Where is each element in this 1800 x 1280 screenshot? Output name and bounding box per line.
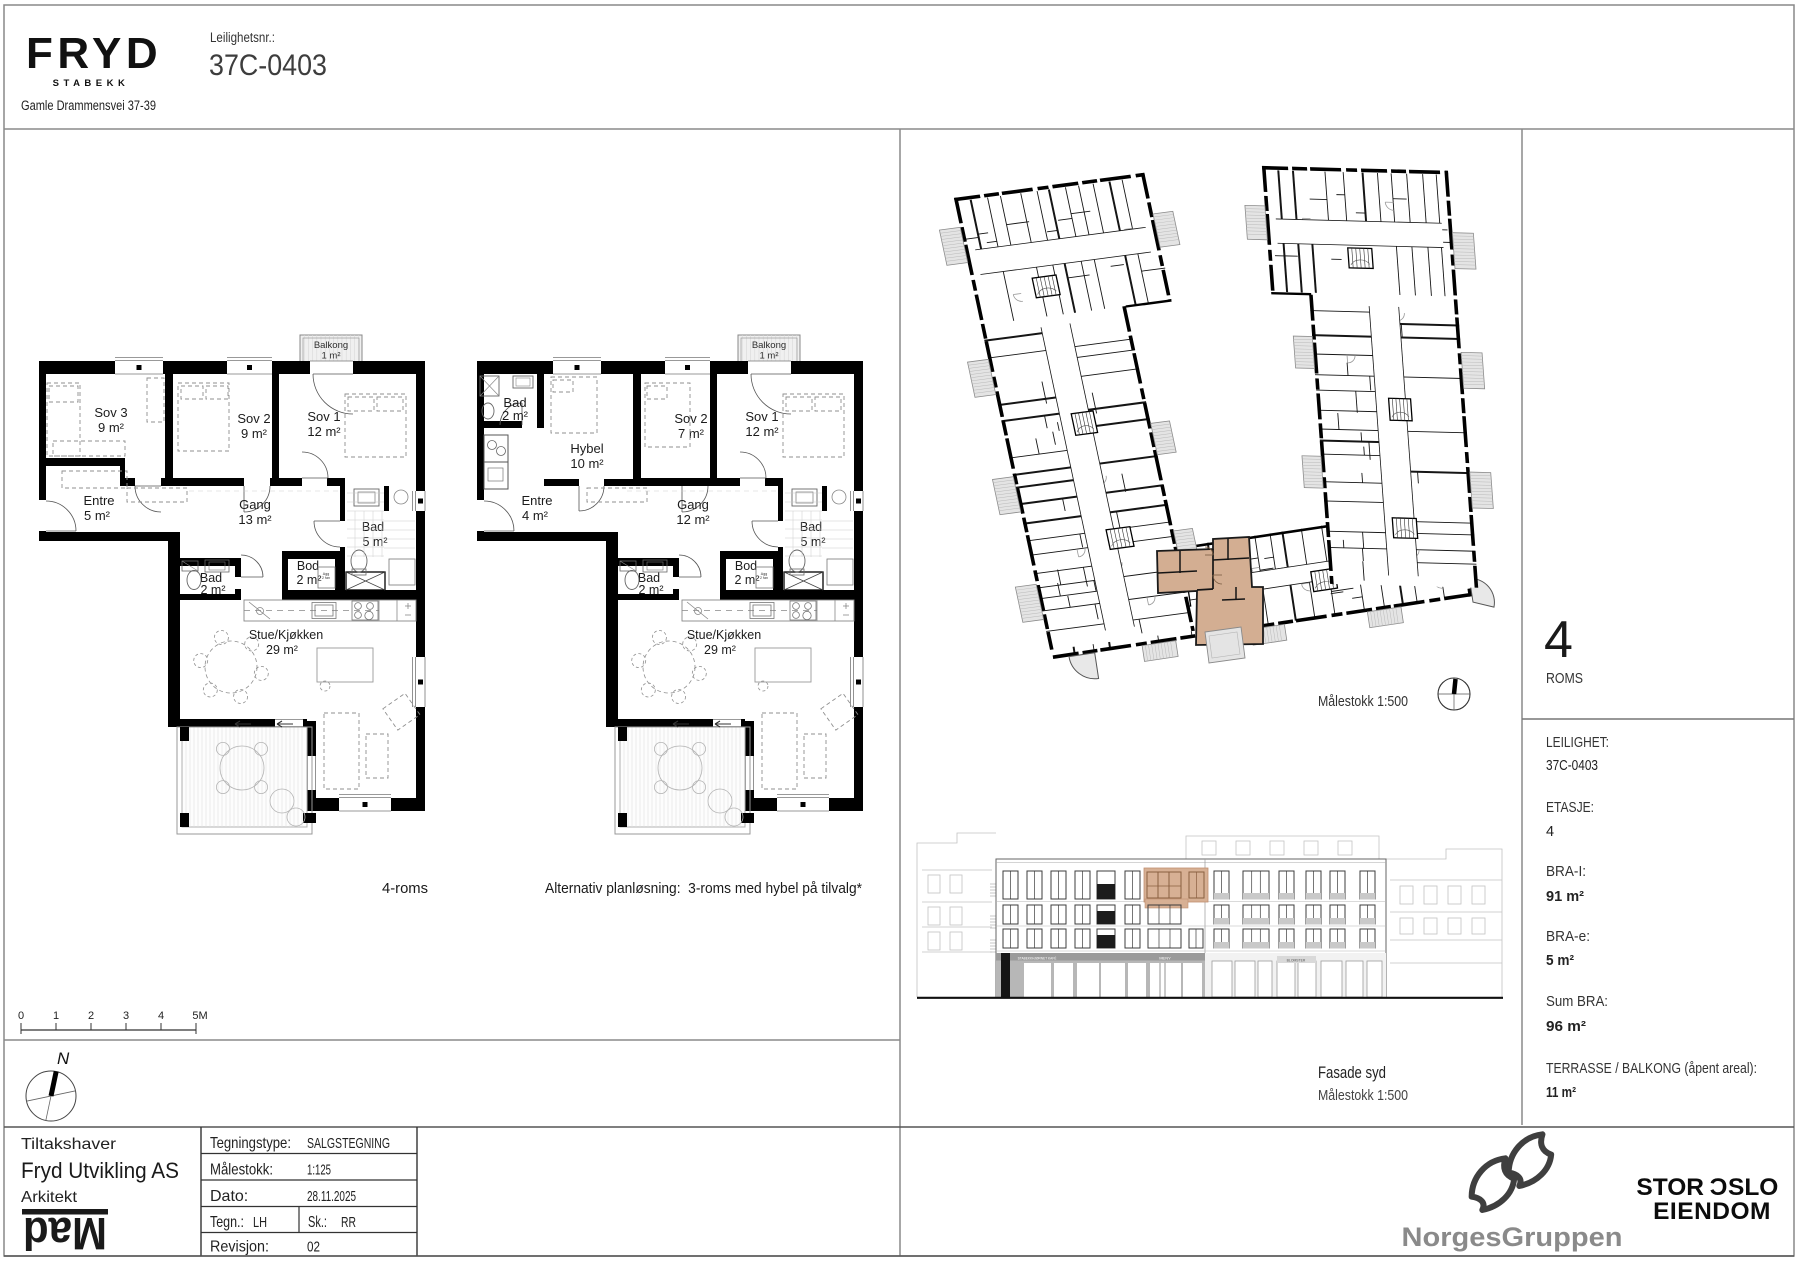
- svg-text:Hybel: Hybel: [570, 441, 603, 456]
- svg-text:BRA-I:: BRA-I:: [1546, 864, 1586, 880]
- svg-text:BRA-e:: BRA-e:: [1546, 929, 1590, 945]
- svg-text:N: N: [57, 1049, 70, 1068]
- svg-text:11 m²: 11 m²: [1546, 1085, 1576, 1101]
- svg-text:Tegningstype:: Tegningstype:: [210, 1135, 291, 1152]
- svg-text:12 m²: 12 m²: [307, 424, 341, 439]
- svg-text:4: 4: [1544, 611, 1573, 669]
- svg-text:ETASJE:: ETASJE:: [1546, 800, 1594, 816]
- svg-text:5 m²: 5 m²: [84, 508, 111, 523]
- svg-text:0: 0: [18, 1010, 24, 1022]
- svg-text:2 m²: 2 m²: [502, 408, 529, 423]
- svg-text:Dato:: Dato:: [210, 1188, 248, 1205]
- svg-text:96 m²: 96 m²: [1546, 1019, 1586, 1035]
- svg-text:Arkitekt: Arkitekt: [21, 1189, 78, 1206]
- svg-text:Sov 2: Sov 2: [674, 411, 707, 426]
- svg-text:LH: LH: [253, 1215, 267, 1231]
- svg-text:Sov 3: Sov 3: [94, 405, 127, 420]
- svg-text:2 m²: 2 m²: [201, 583, 226, 597]
- svg-text:MENY: MENY: [1159, 956, 1171, 961]
- svg-text:Sum BRA:: Sum BRA:: [1546, 994, 1608, 1010]
- svg-text:Tiltakshaver: Tiltakshaver: [21, 1136, 117, 1153]
- svg-text:4-roms: 4-roms: [382, 880, 428, 897]
- svg-text:SLO: SLO: [1728, 1174, 1778, 1201]
- svg-text:Målestokk:: Målestokk:: [210, 1161, 273, 1179]
- svg-text:5M: 5M: [192, 1010, 207, 1022]
- svg-text:Målestokk 1:500: Målestokk 1:500: [1318, 1087, 1408, 1104]
- svg-text:12 m²: 12 m²: [676, 512, 710, 527]
- svg-text:Stue/Kjøkken: Stue/Kjøkken: [687, 628, 761, 642]
- svg-text:2 m²: 2 m²: [639, 583, 664, 597]
- svg-text:4 m²: 4 m²: [522, 508, 549, 523]
- svg-text:SALGSTEGNING: SALGSTEGNING: [307, 1136, 390, 1152]
- svg-text:Stue/Kjøkken: Stue/Kjøkken: [249, 628, 323, 642]
- svg-text:3: 3: [123, 1010, 129, 1022]
- svg-text:Alternativ planløsning: 3-rom: Alternativ planløsning: 3-roms med hybel…: [545, 880, 862, 897]
- svg-text:1:125: 1:125: [307, 1163, 331, 1179]
- svg-text:10 m²: 10 m²: [570, 456, 604, 471]
- svg-text:Revisjon:: Revisjon:: [210, 1239, 269, 1256]
- svg-text:02: 02: [307, 1240, 320, 1256]
- svg-text:1: 1: [53, 1010, 59, 1022]
- svg-text:FRYD: FRYD: [26, 29, 162, 78]
- svg-text:2 fan: 2 fan: [322, 576, 330, 580]
- svg-text:2 fan: 2 fan: [760, 576, 768, 580]
- svg-text:12 m²: 12 m²: [745, 424, 779, 439]
- svg-text:TERRASSE / BALKONG (åpent area: TERRASSE / BALKONG (åpent areal):: [1546, 1061, 1757, 1077]
- svg-text:1 m²: 1 m²: [760, 351, 779, 362]
- svg-text:9 m²: 9 m²: [98, 420, 125, 435]
- svg-text:1 m²: 1 m²: [322, 351, 341, 362]
- svg-text:RR: RR: [341, 1215, 356, 1231]
- svg-text:37C-0403: 37C-0403: [209, 49, 327, 82]
- svg-text:91 m²: 91 m²: [1546, 889, 1584, 905]
- svg-text:28.11.2025: 28.11.2025: [307, 1189, 356, 1205]
- svg-text:BLOMSTER: BLOMSTER: [1287, 959, 1306, 963]
- svg-text:Fryd Utvikling AS: Fryd Utvikling AS: [21, 1158, 179, 1183]
- svg-text:Gang: Gang: [239, 497, 271, 512]
- svg-text:ROMS: ROMS: [1546, 670, 1583, 687]
- svg-text:Sov 1: Sov 1: [307, 409, 340, 424]
- svg-text:2: 2: [88, 1010, 94, 1022]
- svg-text:Balkong: Balkong: [752, 340, 786, 351]
- svg-text:NorgesGruppen: NorgesGruppen: [1402, 1222, 1623, 1252]
- svg-text:Tegn.:: Tegn.:: [210, 1214, 244, 1231]
- svg-text:29 m²: 29 m²: [266, 643, 298, 657]
- svg-text:EIENDOM: EIENDOM: [1653, 1198, 1771, 1225]
- svg-text:4: 4: [158, 1010, 164, 1022]
- svg-text:Sov 2: Sov 2: [237, 411, 270, 426]
- svg-text:Entre: Entre: [83, 493, 114, 508]
- svg-text:Sk.:: Sk.:: [308, 1214, 327, 1231]
- svg-text:Gamle Drammensvei 37-39: Gamle Drammensvei 37-39: [21, 98, 156, 113]
- svg-text:9 m²: 9 m²: [241, 426, 268, 441]
- svg-text:4: 4: [1546, 824, 1554, 840]
- svg-text:37C-0403: 37C-0403: [1546, 758, 1598, 774]
- svg-text:Balkong: Balkong: [314, 340, 348, 351]
- svg-text:Målestokk 1:500: Målestokk 1:500: [1318, 693, 1408, 710]
- svg-text:Entre: Entre: [521, 493, 552, 508]
- svg-text:STABEKK: STABEKK: [53, 78, 130, 89]
- svg-text:Fasade syd: Fasade syd: [1318, 1064, 1386, 1082]
- svg-text:Gang: Gang: [677, 497, 709, 512]
- svg-text:STOR: STOR: [1636, 1174, 1704, 1201]
- svg-text:Mad: Mad: [23, 1208, 107, 1259]
- svg-text:STABEKKHJØRNET KAFÉ: STABEKKHJØRNET KAFÉ: [1018, 956, 1057, 961]
- svg-text:13 m²: 13 m²: [238, 512, 272, 527]
- svg-text:C: C: [1709, 1174, 1727, 1201]
- svg-text:7 m²: 7 m²: [678, 426, 705, 441]
- svg-text:Bod: Bod: [735, 559, 757, 573]
- svg-text:LEILIGHET:: LEILIGHET:: [1546, 735, 1609, 751]
- svg-text:Bod: Bod: [297, 559, 319, 573]
- svg-text:29 m²: 29 m²: [704, 643, 736, 657]
- svg-text:Leilighetsnr.:: Leilighetsnr.:: [210, 30, 275, 45]
- svg-text:5 m²: 5 m²: [1546, 953, 1574, 969]
- svg-text:Sov 1: Sov 1: [745, 409, 778, 424]
